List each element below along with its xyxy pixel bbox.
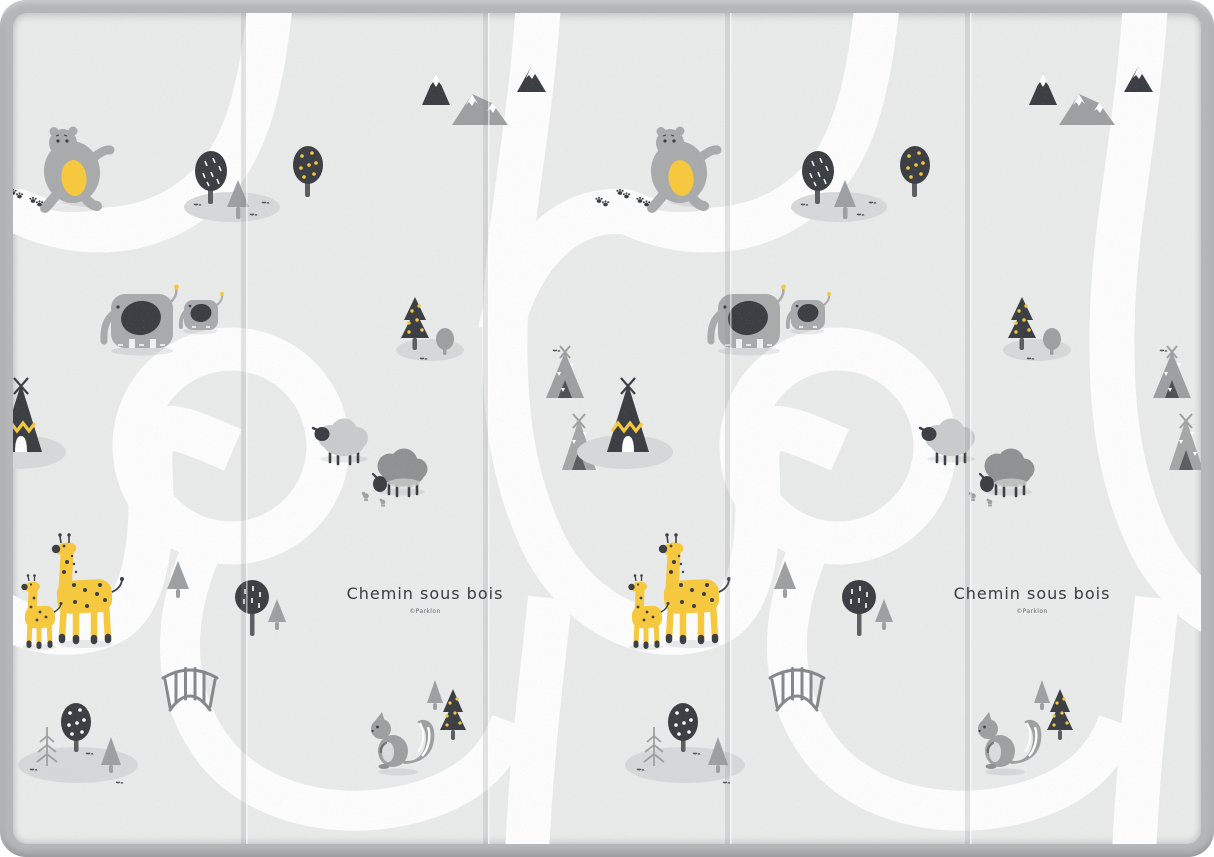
mat-title-left: Chemin sous bois ©Parklon	[345, 586, 505, 615]
speckle-texture-light	[13, 13, 1201, 844]
mat-credit-text: ©Parklon	[345, 609, 505, 615]
fold-line	[483, 13, 490, 844]
playmat-surface: Chemin sous bois ©Parklon Chemin sous bo…	[13, 13, 1201, 844]
mat-title-text: Chemin sous bois	[952, 586, 1112, 602]
fold-line	[241, 13, 248, 844]
playmat-photo: Chemin sous bois ©Parklon Chemin sous bo…	[0, 0, 1214, 857]
mat-title-right: Chemin sous bois ©Parklon	[952, 586, 1112, 615]
fold-line	[725, 13, 732, 844]
playmat-border: Chemin sous bois ©Parklon Chemin sous bo…	[0, 0, 1214, 857]
mat-credit-text: ©Parklon	[952, 609, 1112, 615]
mat-title-text: Chemin sous bois	[345, 586, 505, 602]
playmat-pattern	[13, 13, 1201, 844]
fold-line	[965, 13, 972, 844]
